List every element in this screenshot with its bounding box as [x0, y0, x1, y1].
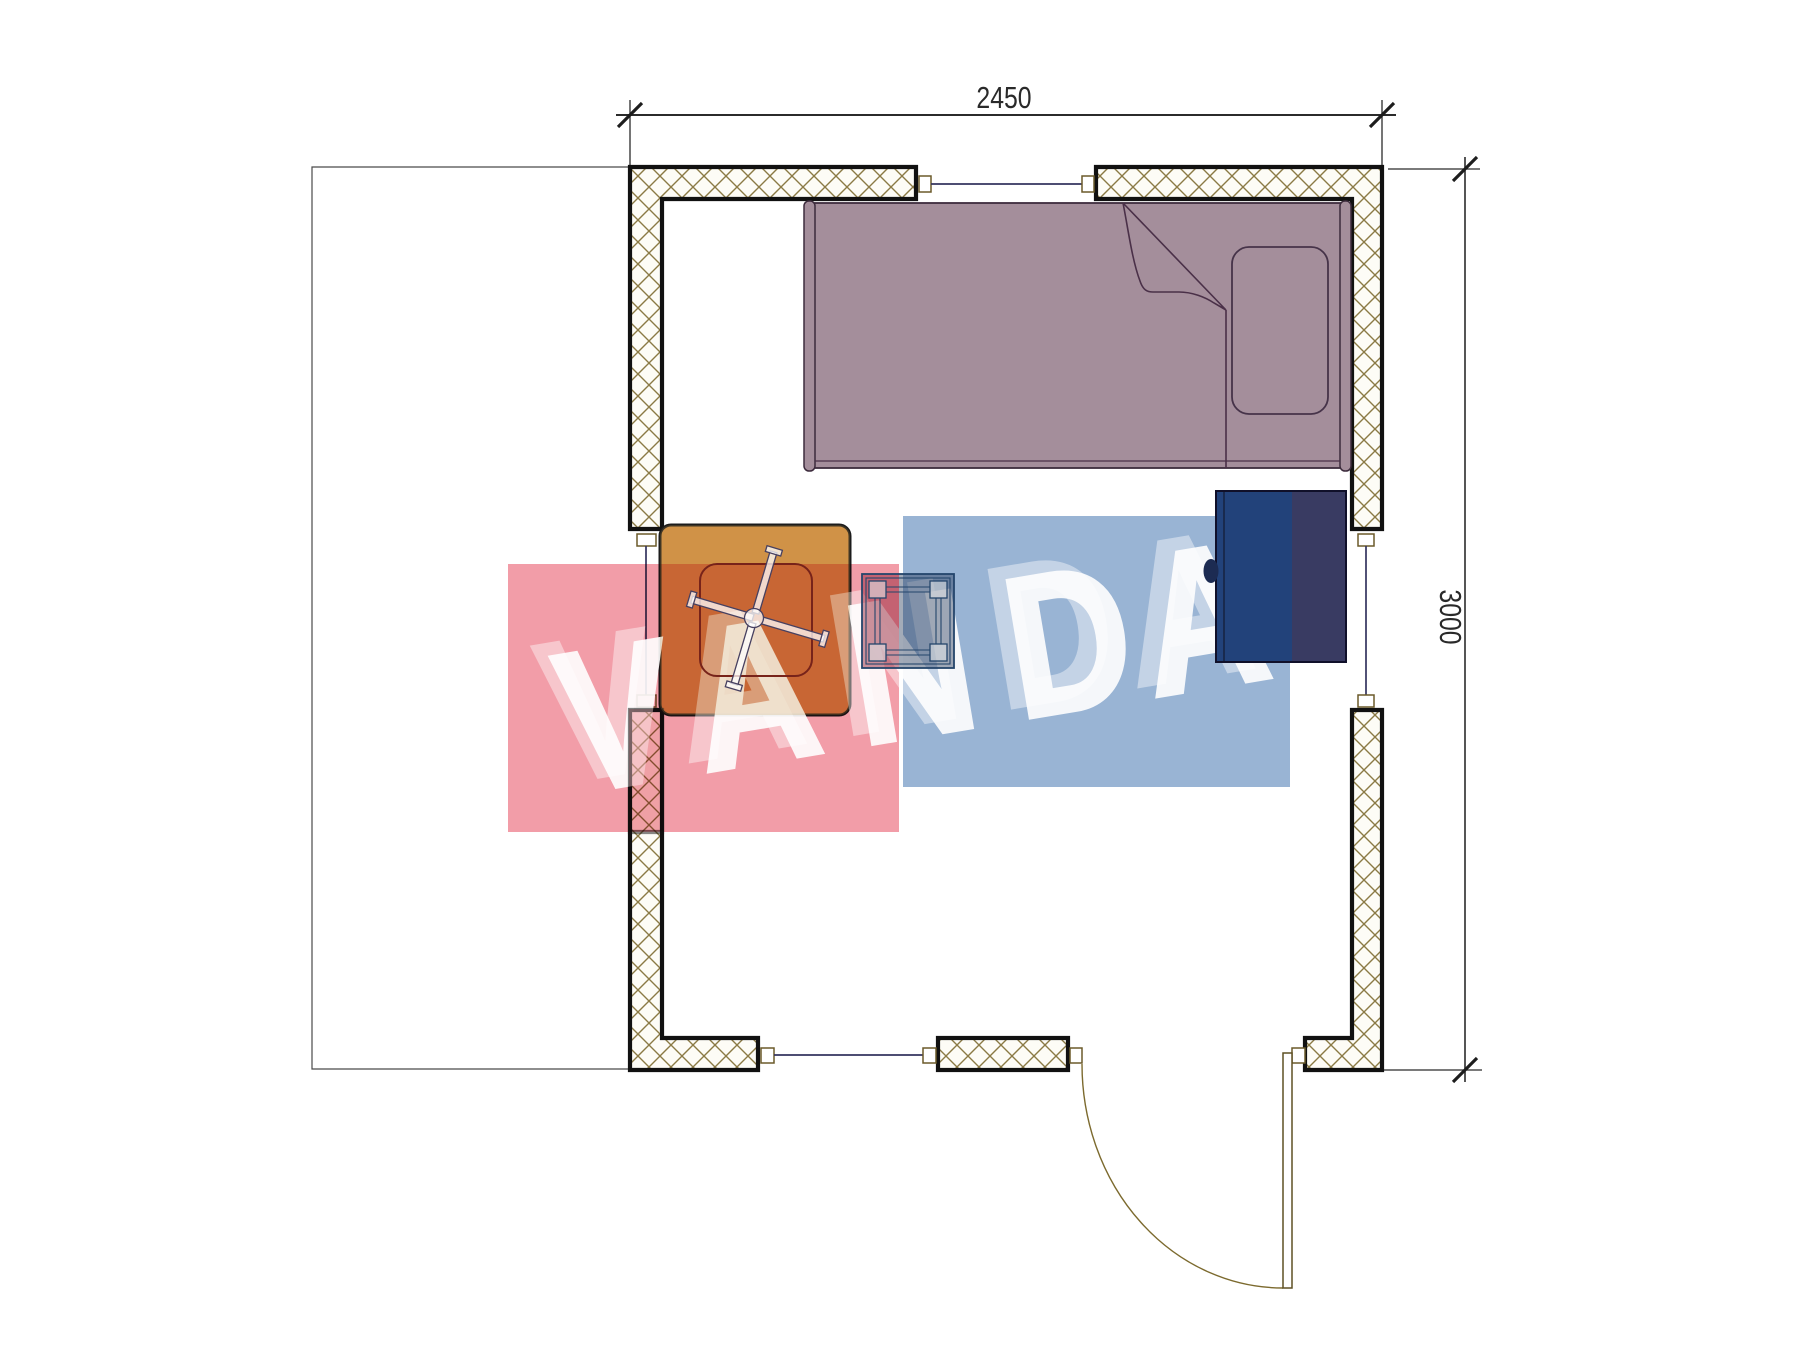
svg-text:3000: 3000	[1433, 589, 1467, 644]
svg-text:2450: 2450	[976, 80, 1031, 114]
